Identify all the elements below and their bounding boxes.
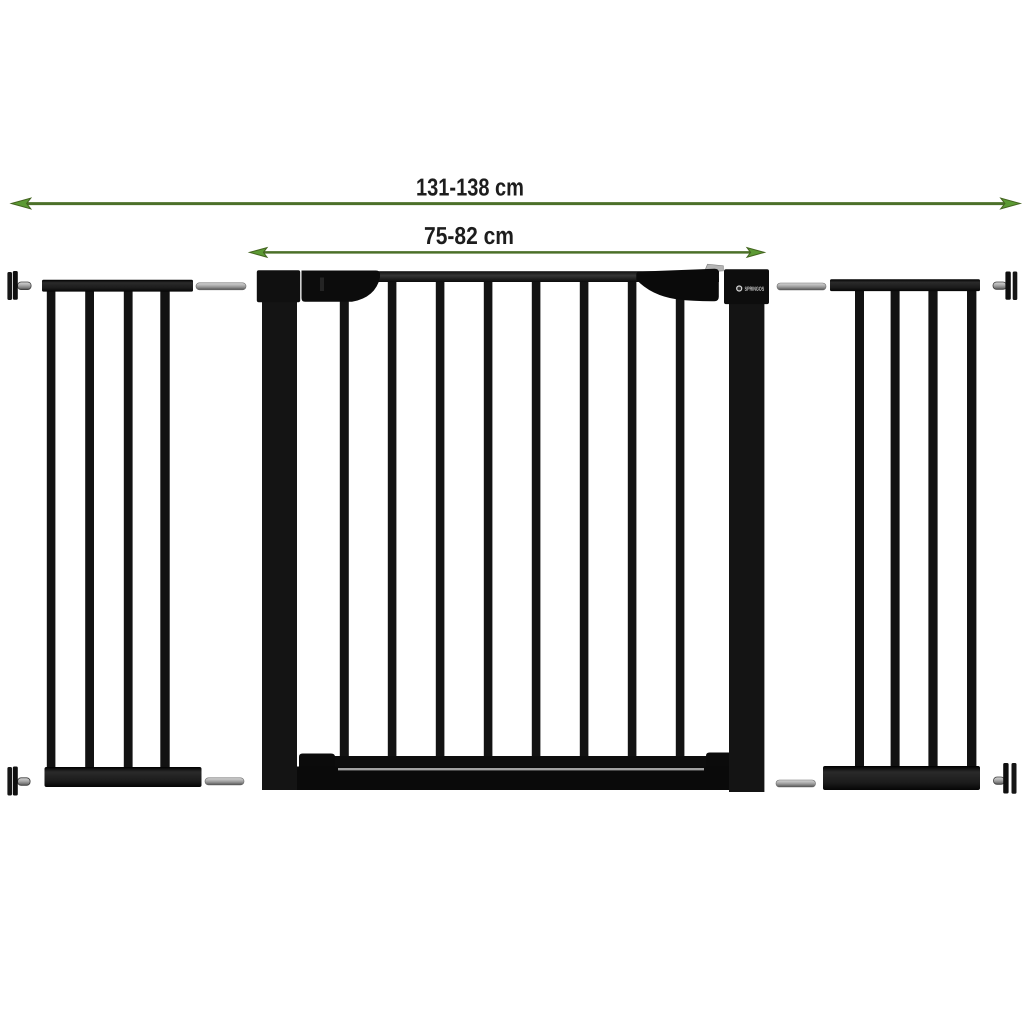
svg-text:75-82 cm: 75-82 cm [424, 223, 514, 250]
svg-text:131-138 cm: 131-138 cm [416, 174, 524, 201]
